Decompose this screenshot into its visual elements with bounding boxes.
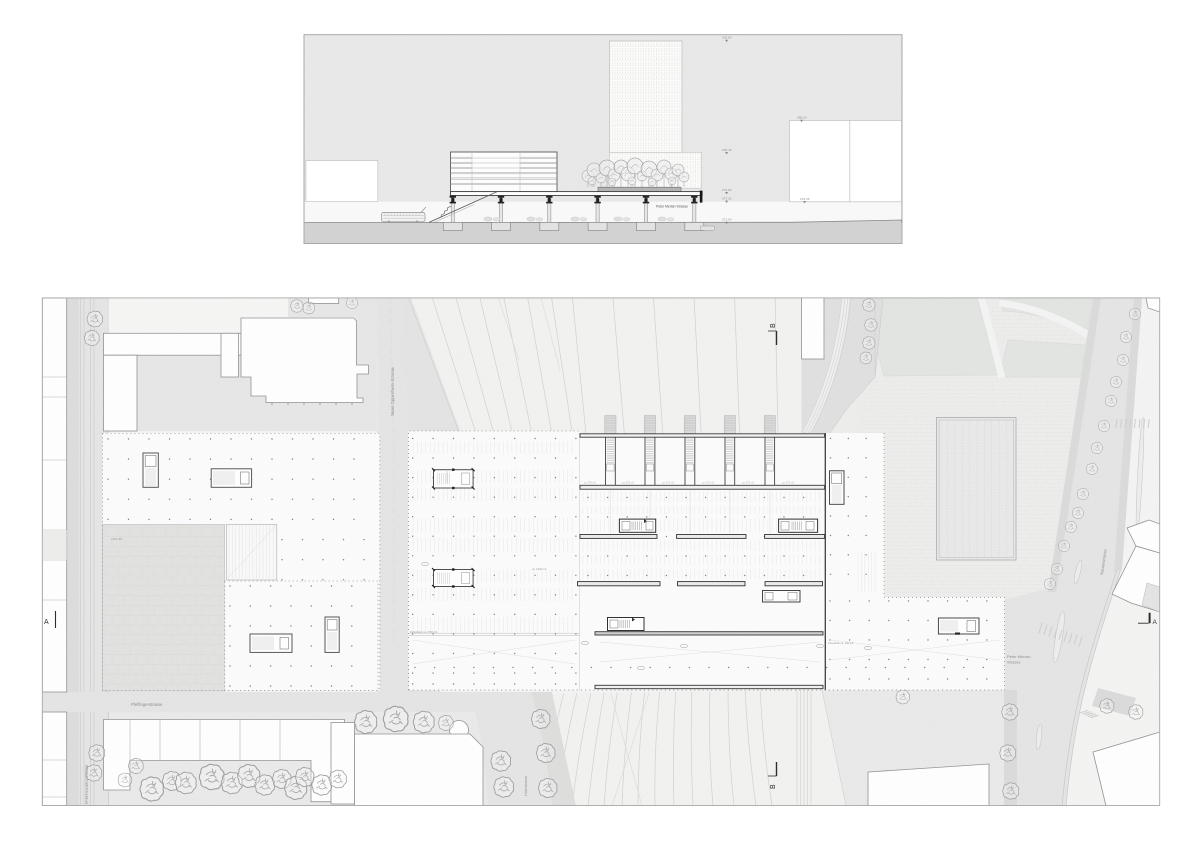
svg-text:279.60: 279.60 <box>722 188 732 192</box>
svg-text:329.00: 329.00 <box>722 36 732 40</box>
svg-text:271.00: 271.00 <box>722 218 732 222</box>
svg-text:276.35: 276.35 <box>800 197 810 201</box>
svg-text:Peter Merian-Strasse: Peter Merian-Strasse <box>656 204 688 208</box>
svg-text:286.20: 286.20 <box>797 116 807 120</box>
svg-text:293.45: 293.45 <box>722 148 732 152</box>
svg-text:277.35: 277.35 <box>722 196 732 200</box>
